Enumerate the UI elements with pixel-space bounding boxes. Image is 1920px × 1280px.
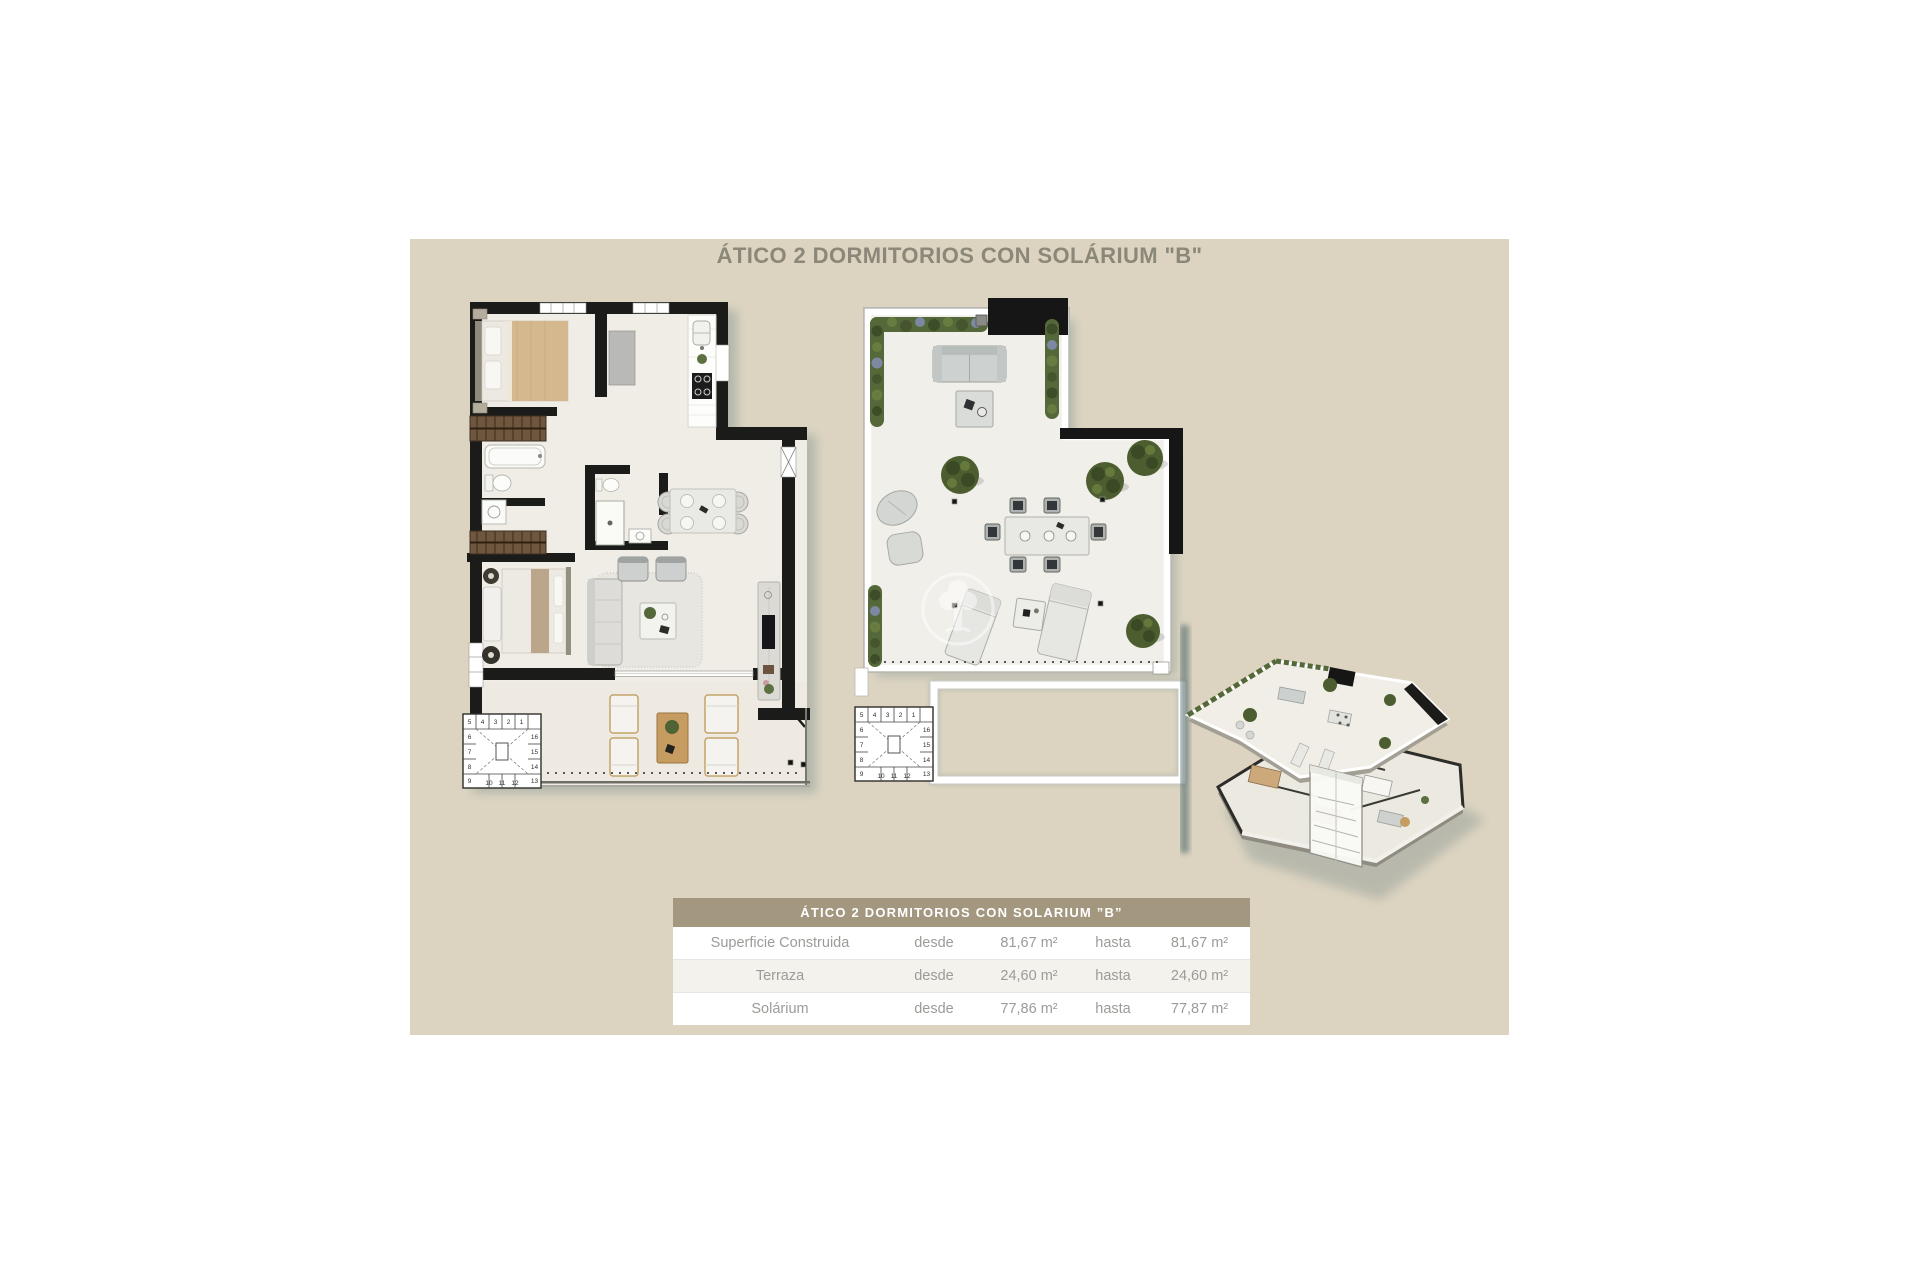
stair-number: 5 — [468, 719, 472, 726]
cast-shadow — [1180, 625, 1189, 853]
kitchen — [688, 315, 716, 427]
desde-value: 81,67 m² — [981, 927, 1077, 959]
hasta-label: hasta — [1077, 993, 1149, 1025]
row-label: Solárium — [673, 993, 887, 1025]
stair-number: 11 — [891, 773, 898, 780]
bedroom1-bed — [473, 309, 568, 413]
stair-number: 16 — [923, 727, 931, 734]
stair-number: 12 — [511, 780, 519, 787]
desde-label: desde — [887, 960, 981, 992]
hasta-label: hasta — [1077, 960, 1149, 992]
wardrobe2 — [470, 531, 546, 554]
stair-number: 13 — [531, 778, 539, 785]
side-table — [1013, 598, 1046, 631]
stair-number: 6 — [860, 727, 864, 734]
stair-number: 2 — [507, 719, 511, 726]
living-room — [588, 557, 702, 667]
hasta-value: 81,67 m² — [1149, 927, 1250, 959]
lower-outline-rim — [934, 685, 1182, 780]
table-row: Superficie Construida desde 81,67 m² has… — [673, 927, 1250, 959]
stair-number: 13 — [923, 771, 931, 778]
brochure-page: ÁTICO 2 DORMITORIOS CON SOLÁRIUM "B" — [0, 0, 1920, 1280]
stair-number: 7 — [860, 742, 864, 749]
stair-number: 9 — [468, 778, 472, 785]
stair-number: 12 — [903, 773, 911, 780]
stair-number: 15 — [923, 742, 931, 749]
stair-number: 14 — [531, 764, 539, 771]
stair-number: 10 — [485, 780, 493, 787]
table-row: Solárium desde 77,86 m² hasta 77,87 m² — [673, 992, 1250, 1025]
stair-number: 16 — [531, 734, 539, 741]
iso-stair-tower — [1310, 765, 1362, 867]
hedge-top — [870, 315, 988, 332]
desde-value: 77,86 m² — [981, 993, 1077, 1025]
dining-set — [658, 489, 748, 534]
stair-number: 15 — [531, 749, 539, 756]
desde-label: desde — [887, 927, 981, 959]
hedge-left-upper — [870, 317, 884, 427]
stair-number: 1 — [912, 712, 916, 719]
outdoor-sofa — [933, 346, 1006, 382]
stair-number: 7 — [468, 749, 472, 756]
staircase: 5 4 3 2 1 6 7 8 9 16 15 14 13 10 11 12 — [855, 707, 933, 781]
stair-number: 6 — [468, 734, 472, 741]
area-table: ÁTICO 2 DORMITORIOS CON SOLARIUM ”B” Sup… — [673, 898, 1250, 1025]
solarium-floor-plan: 5 4 3 2 1 6 7 8 9 16 15 14 13 10 11 12 — [850, 295, 1200, 800]
bedroom2-bed — [482, 567, 571, 664]
wardrobe1 — [470, 416, 546, 441]
stair-number: 4 — [481, 719, 485, 726]
stair-number: 14 — [923, 757, 931, 764]
stair-number: 9 — [860, 771, 864, 778]
staircase: 5 4 3 2 1 6 7 8 9 16 15 14 13 10 11 12 — [463, 714, 541, 788]
apartment-floor-plan: 5 4 3 2 1 6 7 8 9 16 15 14 13 10 11 12 — [455, 295, 860, 815]
stair-number: 8 — [860, 757, 864, 764]
stair-number: 11 — [499, 780, 506, 787]
stair-number: 1 — [520, 719, 524, 726]
stair-number: 8 — [468, 764, 472, 771]
lower-floor-outline — [934, 685, 1182, 780]
hasta-value: 24,60 m² — [1149, 960, 1250, 992]
stair-number: 5 — [860, 712, 864, 719]
tv-sideboard — [758, 582, 780, 700]
desde-label: desde — [887, 993, 981, 1025]
brochure-panel: ÁTICO 2 DORMITORIOS CON SOLÁRIUM "B" — [410, 239, 1509, 1035]
hasta-label: hasta — [1077, 927, 1149, 959]
stair-number: 3 — [886, 712, 890, 719]
hall-closet — [609, 331, 635, 385]
row-label: Terraza — [673, 960, 887, 992]
hasta-value: 77,87 m² — [1149, 993, 1250, 1025]
table-title: ÁTICO 2 DORMITORIOS CON SOLARIUM ”B” — [673, 898, 1250, 927]
hedge-right-upper — [1045, 319, 1059, 419]
isometric-3d-view — [1180, 615, 1515, 915]
stair-number: 3 — [494, 719, 498, 726]
coffee-table — [956, 391, 993, 427]
stair-number: 4 — [873, 712, 877, 719]
pouf — [886, 531, 924, 567]
row-label: Superficie Construida — [673, 927, 887, 959]
hedge-left-lower — [868, 585, 882, 667]
stair-number: 2 — [899, 712, 903, 719]
page-title: ÁTICO 2 DORMITORIOS CON SOLÁRIUM "B" — [410, 243, 1509, 269]
desde-value: 24,60 m² — [981, 960, 1077, 992]
table-row: Terraza desde 24,60 m² hasta 24,60 m² — [673, 959, 1250, 992]
stair-number: 10 — [877, 773, 885, 780]
